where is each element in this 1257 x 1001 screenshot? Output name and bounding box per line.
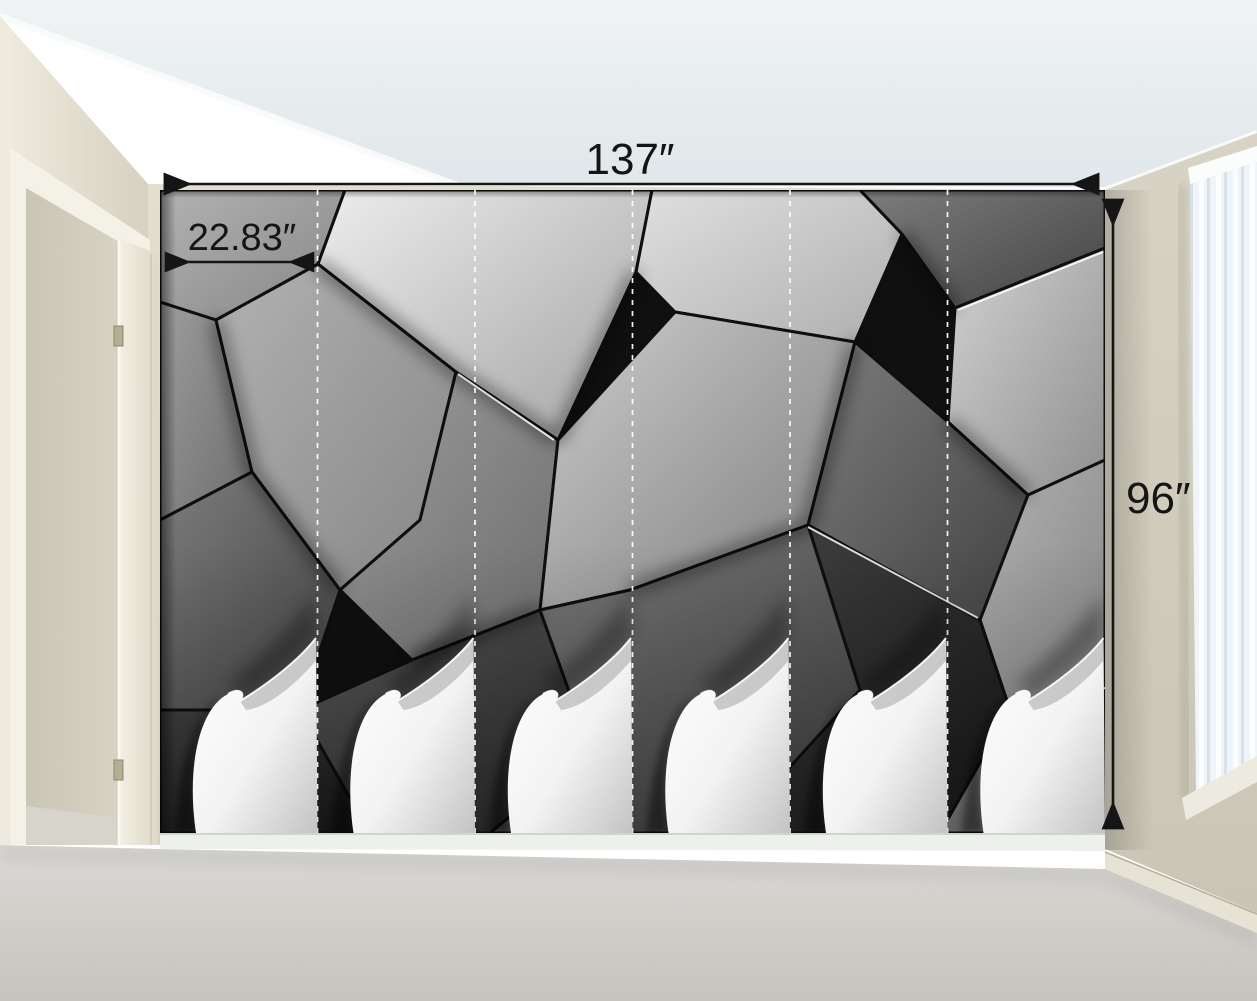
door-hinge-upper (114, 326, 123, 346)
baseboard-below-mural (160, 833, 1105, 851)
product-photo-wall-mural-mockup: 137″ 96″ 22.83″ (0, 0, 1257, 1001)
mural-left-shadow (160, 190, 176, 833)
door-frame-left (10, 148, 26, 845)
room-scene: 137″ 96″ 22.83″ (0, 0, 1257, 1001)
open-door (118, 238, 158, 845)
width-dimension-label: 137″ (586, 135, 675, 184)
panel-width-dimension-label: 22.83″ (188, 217, 297, 259)
carpet-texture (0, 840, 1257, 1001)
height-dimension-label: 96″ (1126, 474, 1191, 523)
mural-pattern (160, 190, 1105, 833)
wall-mural (160, 190, 1105, 833)
blinds-slats (1190, 162, 1257, 798)
door-hinge-lower (114, 760, 123, 780)
